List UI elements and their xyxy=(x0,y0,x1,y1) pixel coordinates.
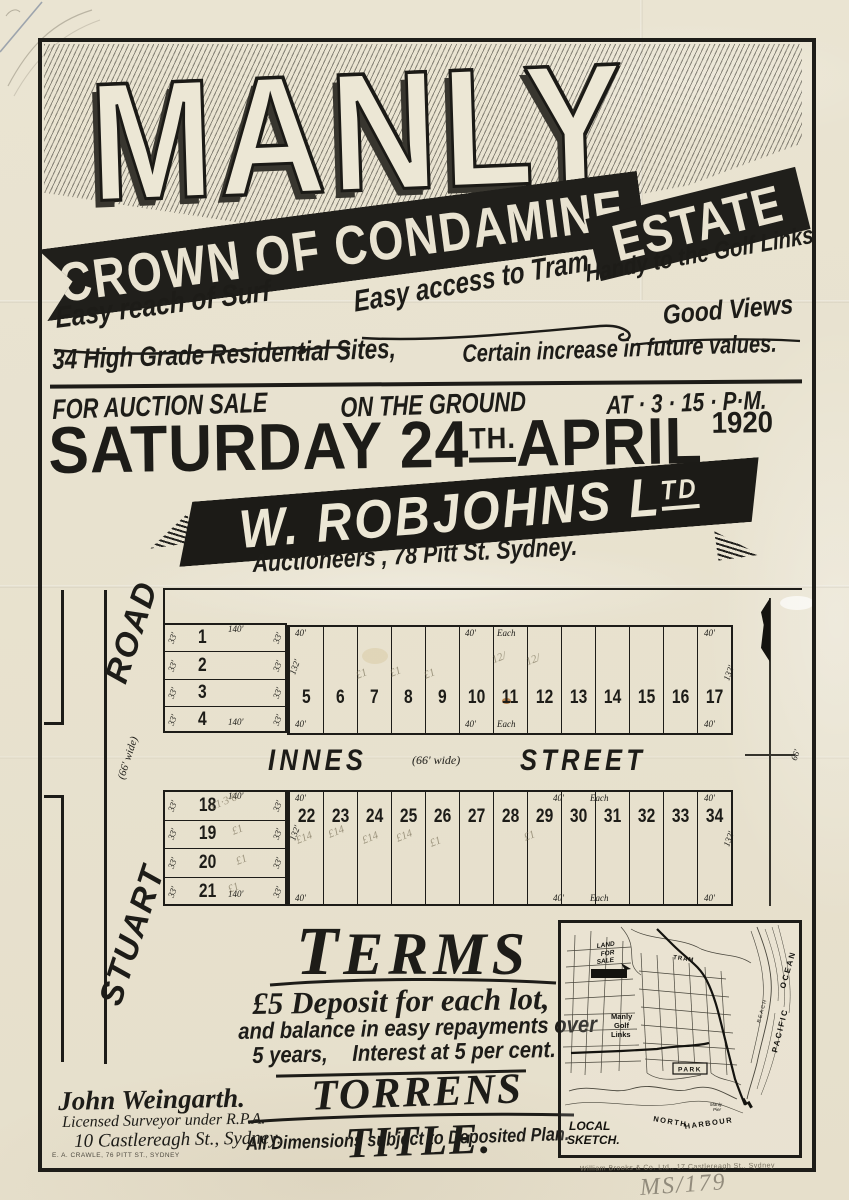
dim-each: Each xyxy=(590,793,609,803)
lot-number: 34 xyxy=(706,806,723,828)
lot-cell: 15 xyxy=(629,627,663,733)
dim-40: 40' xyxy=(553,893,564,903)
lot-row: 33' 20 33' xyxy=(165,849,285,878)
local-sketch-box: LAND FOR SALE Manly Golf Links TRAM PARK… xyxy=(558,920,802,1158)
dim-40: 40' xyxy=(295,893,306,903)
terms-line3b: Interest at 5 per cent. xyxy=(352,1036,556,1067)
poster-page: MANLY CROWN OF CONDAMINE ESTATE Easy rea… xyxy=(0,0,849,1200)
lot-cell: 34 xyxy=(697,792,731,904)
block1-front-dim: 140' xyxy=(228,624,243,634)
lot-number: 8 xyxy=(404,687,413,709)
lot-side-dim: 33' xyxy=(166,714,179,728)
lot-cell: 5 xyxy=(289,627,323,733)
dim-each: Each xyxy=(497,628,516,638)
lot-number: 19 xyxy=(199,823,216,845)
date-ordinal: TH. xyxy=(469,421,516,462)
lot-cell: 25 xyxy=(391,792,425,904)
lot-side-dim: 33' xyxy=(166,885,179,899)
dim-40: 40' xyxy=(553,793,564,803)
lot-side-dim: 33' xyxy=(271,856,284,870)
lot-number: 5 xyxy=(302,687,311,709)
lot-cell: 32 xyxy=(629,792,663,904)
park-label: PARK xyxy=(678,1067,702,1074)
lot-cell: 23 xyxy=(323,792,357,904)
lot-number: 3 xyxy=(198,682,207,704)
lot-cell: 28 xyxy=(493,792,527,904)
lot-side-dim: 33' xyxy=(271,885,284,899)
lot-number: 16 xyxy=(672,687,689,709)
lot-cell: 29 xyxy=(527,792,561,904)
lot-number: 9 xyxy=(438,687,447,709)
lot-number: 10 xyxy=(468,687,485,709)
lot-number: 4 xyxy=(198,709,207,731)
sketch-caption: SKETCH. xyxy=(567,1133,620,1147)
innes-street-width: (66' wide) xyxy=(412,753,460,768)
lot-side-dim: 33' xyxy=(166,799,179,813)
lot-side-dim: 33' xyxy=(271,686,284,700)
lot-number: 24 xyxy=(366,806,383,828)
dim-each: Each xyxy=(497,719,516,729)
lot-cell: 24 xyxy=(357,792,391,904)
lot-number: 25 xyxy=(400,806,417,828)
lot-number: 15 xyxy=(638,687,655,709)
north-arrow-cross xyxy=(745,754,795,756)
block2-col-lots: 22 23 24 25 26 27 28 xyxy=(287,790,733,906)
lot-cell: 12 xyxy=(527,627,561,733)
pier-label: Pier xyxy=(713,1107,722,1112)
dim-40: 40' xyxy=(704,793,715,803)
block1-row-lots: 33' 1 33' 33' 2 33' 33' 3 33' 33' 4 33' xyxy=(163,623,287,733)
date-year: 1920 xyxy=(711,406,773,440)
lot-side-dim: 33' xyxy=(271,714,284,728)
lot-cell: 22 xyxy=(289,792,323,904)
plan-line-west-block1 xyxy=(61,590,64,722)
lot-cell: 30 xyxy=(561,792,595,904)
lot-number: 33 xyxy=(672,806,689,828)
innes-street-label: INNES xyxy=(268,744,367,778)
lot-row: 33' 4 33' xyxy=(165,707,285,733)
pier-marker xyxy=(747,1101,753,1109)
dim-40: 40' xyxy=(465,628,476,638)
lot-number: 30 xyxy=(570,806,587,828)
harbour-label: HARBOUR xyxy=(684,1115,734,1131)
sketch-caption: LOCAL xyxy=(569,1119,610,1133)
lot-number: 17 xyxy=(706,687,723,709)
lot-number: 21 xyxy=(199,881,216,903)
plan-line-west-block2 xyxy=(61,795,64,1062)
lot-row: 33' 21 33' xyxy=(165,878,285,906)
lot-side-dim: 33' xyxy=(271,828,284,842)
lot-cell: 10 xyxy=(459,627,493,733)
lot-number: 12 xyxy=(536,687,553,709)
local-sketch-map: LAND FOR SALE Manly Golf Links TRAM PARK… xyxy=(561,923,799,1155)
dim-40: 40' xyxy=(465,719,476,729)
block1-front-dim: 140' xyxy=(228,717,243,727)
lot-side-dim: 33' xyxy=(166,686,179,700)
street-grid xyxy=(563,927,751,1085)
terms-line3a: 5 years, xyxy=(252,1041,328,1069)
ocean-label: OCEAN xyxy=(778,950,797,990)
tram-label: TRAM xyxy=(673,955,695,964)
lot-number: 29 xyxy=(536,806,553,828)
lot-side-dim: 33' xyxy=(166,631,179,645)
lot-number: 27 xyxy=(468,806,485,828)
lot-number: 20 xyxy=(199,852,216,874)
ocean-label: PACIFIC xyxy=(770,1007,790,1053)
lot-number: 32 xyxy=(638,806,655,828)
lot-number: 1 xyxy=(198,627,207,649)
lot-side-dim: 33' xyxy=(271,631,284,645)
land-label: SALE xyxy=(596,957,615,966)
torrens-underline xyxy=(246,1112,576,1124)
lot-cell: 26 xyxy=(425,792,459,904)
lot-number: 11 xyxy=(502,687,518,709)
lot-number: 28 xyxy=(502,806,519,828)
lot-number: 2 xyxy=(198,655,207,677)
lot-number: 14 xyxy=(604,687,621,709)
catalog-number: MS/179 xyxy=(639,1169,727,1200)
land-for-sale-marker xyxy=(591,969,627,978)
lot-side-dim: 33' xyxy=(166,856,179,870)
innes-street-label2: STREET xyxy=(520,744,646,778)
lot-cell: 33 xyxy=(663,792,697,904)
dim-40: 40' xyxy=(704,628,715,638)
dim-40: 40' xyxy=(704,893,715,903)
dim-40: 40' xyxy=(295,793,306,803)
lot-number: 22 xyxy=(298,806,315,828)
lot-number: 6 xyxy=(336,687,345,709)
lot-cell: 16 xyxy=(663,627,697,733)
lot-number: 7 xyxy=(370,687,379,709)
tram-line xyxy=(571,929,745,1105)
dim-40: 40' xyxy=(704,719,715,729)
printer-credit-left: E. A. CRAWLE, 76 PITT ST., SYDNEY xyxy=(52,1152,180,1159)
lot-side-dim: 33' xyxy=(166,659,179,673)
lot-cell: 31 xyxy=(595,792,629,904)
lot-number: 31 xyxy=(604,806,621,828)
lot-cell: 13 xyxy=(561,627,595,733)
lot-number: 26 xyxy=(434,806,451,828)
dim-each: Each xyxy=(590,893,609,903)
lot-cell: 14 xyxy=(595,627,629,733)
date-main: SATURDAY 24 xyxy=(48,407,470,487)
lot-row: 33' 1 33' xyxy=(165,625,285,652)
golf-links-label: Golf xyxy=(614,1021,629,1030)
lot-cell: 27 xyxy=(459,792,493,904)
lot-row: 33' 3 33' xyxy=(165,680,285,707)
lot-side-dim: 33' xyxy=(166,828,179,842)
lot-row: 33' 19 33' xyxy=(165,821,285,850)
lot-number: 13 xyxy=(570,687,587,709)
lot-side-dim: 33' xyxy=(271,799,284,813)
lot-row: 33' 2 33' xyxy=(165,652,285,679)
surveyor-line3: 10 Castlereagh St., Sydney. xyxy=(74,1127,282,1153)
plan-north-boundary xyxy=(163,588,802,590)
dim-40: 40' xyxy=(295,628,306,638)
lot-cell: 6 xyxy=(323,627,357,733)
harbour-label: NORTH xyxy=(653,1114,688,1129)
golf-links-label: Manly xyxy=(611,1012,633,1021)
plan-line-west-block1-corner xyxy=(44,722,64,725)
dim-40: 40' xyxy=(295,719,306,729)
golf-links-label: Links xyxy=(611,1030,631,1039)
plan-west-boundary-upper xyxy=(163,588,165,625)
lot-cell: 11 xyxy=(493,627,527,733)
lot-cell: 8 xyxy=(391,627,425,733)
agent-name-sup: TD xyxy=(659,473,699,511)
lot-side-dim: 33' xyxy=(271,659,284,673)
